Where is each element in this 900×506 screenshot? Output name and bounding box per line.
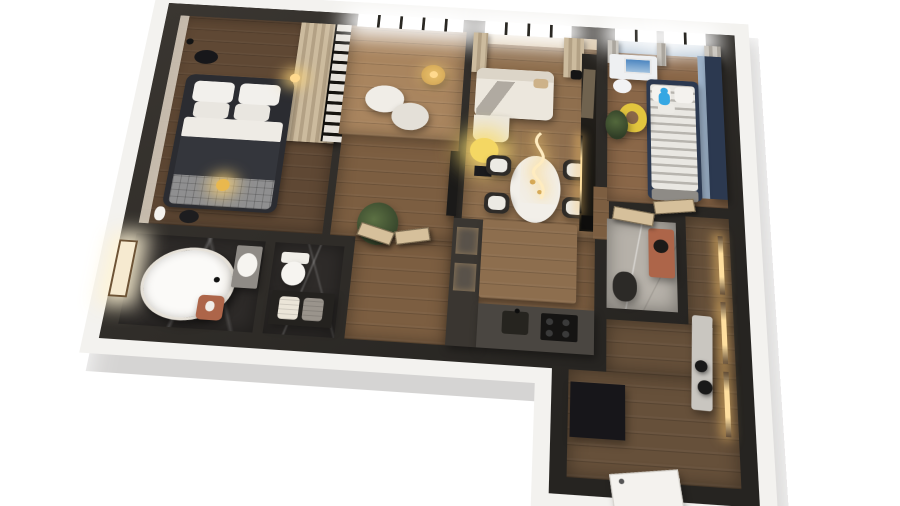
induction-hob (540, 313, 578, 342)
squiggle-pendant-light (519, 129, 560, 205)
white-towels (277, 296, 300, 320)
black-stool (697, 380, 712, 395)
leaning-artwork (581, 69, 596, 119)
cabinet-niche (453, 263, 477, 292)
hob-burner (562, 319, 569, 326)
bed-pillow (238, 83, 282, 106)
desk-monitor (624, 58, 652, 75)
entry-console (569, 381, 625, 440)
entry-door (609, 469, 686, 506)
kids-plant (605, 110, 628, 140)
vanity-sink (653, 239, 668, 253)
sofa-cushion (533, 79, 548, 89)
terracotta-vanity (648, 228, 675, 278)
kids-door (653, 199, 696, 215)
black-stool (695, 360, 708, 373)
apartment-plan (73, 3, 760, 506)
floor-plan-render (0, 0, 900, 506)
bed-pillow (191, 80, 235, 103)
kids-pillow (674, 87, 693, 104)
hob-burner (562, 331, 569, 338)
hall-floor-mid (606, 319, 736, 380)
chair-seat (488, 195, 506, 210)
toy-chair-seat (626, 111, 638, 125)
chair-seat (490, 158, 508, 172)
living-curtain-left (471, 32, 488, 72)
kids-curtain (657, 43, 667, 66)
speaker (581, 215, 593, 230)
kitchen-sink (501, 310, 529, 335)
kids-window (664, 31, 706, 45)
hob-burner (546, 318, 553, 325)
dark-toilet (613, 271, 637, 302)
hob-burner (546, 330, 553, 337)
grey-towels (301, 298, 324, 322)
desk-chair (613, 79, 632, 94)
bear-figure (659, 92, 670, 105)
cabinet-niche (455, 227, 478, 255)
speaker (571, 70, 582, 80)
corridor-floor-south (344, 236, 452, 345)
hall-floor-north (685, 216, 733, 327)
sofa-throw (476, 80, 519, 117)
kids-window (615, 29, 657, 43)
door-handle (619, 479, 624, 485)
kitchen-island (479, 220, 578, 304)
